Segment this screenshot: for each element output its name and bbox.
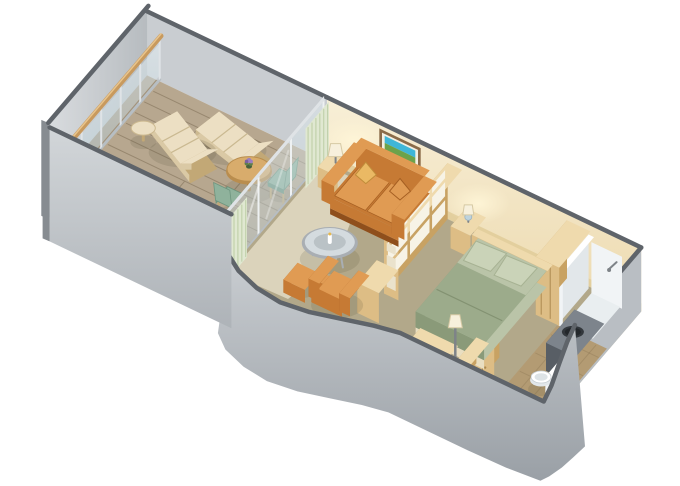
railing-post	[100, 109, 102, 149]
shower-head	[607, 268, 611, 272]
lounge-chair-2-backside	[180, 164, 191, 170]
railing-post	[139, 63, 141, 103]
flower-bloom	[245, 160, 249, 164]
bedside-lamp-shade	[463, 205, 474, 215]
balcony-front-wall-cap	[43, 124, 50, 241]
stateroom-floorplan	[0, 0, 680, 486]
door-mullion	[290, 137, 292, 197]
toilet-seat	[535, 373, 548, 381]
balcony-side-table	[131, 121, 155, 135]
railing-post	[159, 40, 161, 80]
closet-handle	[484, 366, 486, 368]
flower-bloom	[249, 160, 253, 164]
candle-flame	[328, 233, 331, 236]
railing-post	[120, 86, 122, 126]
table-lamp-shade	[328, 144, 343, 157]
floor-lamp-shade	[448, 315, 462, 328]
floorplan-canvas	[0, 0, 680, 486]
